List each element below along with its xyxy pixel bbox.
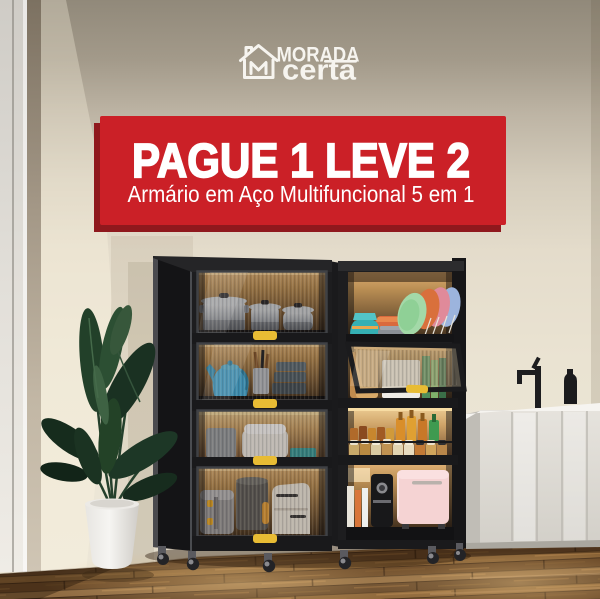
svg-text:Armário em Aço Multifuncional: Armário em Aço Multifuncional 5 em 1 [128, 181, 475, 207]
svg-text:certa: certa [282, 55, 357, 87]
